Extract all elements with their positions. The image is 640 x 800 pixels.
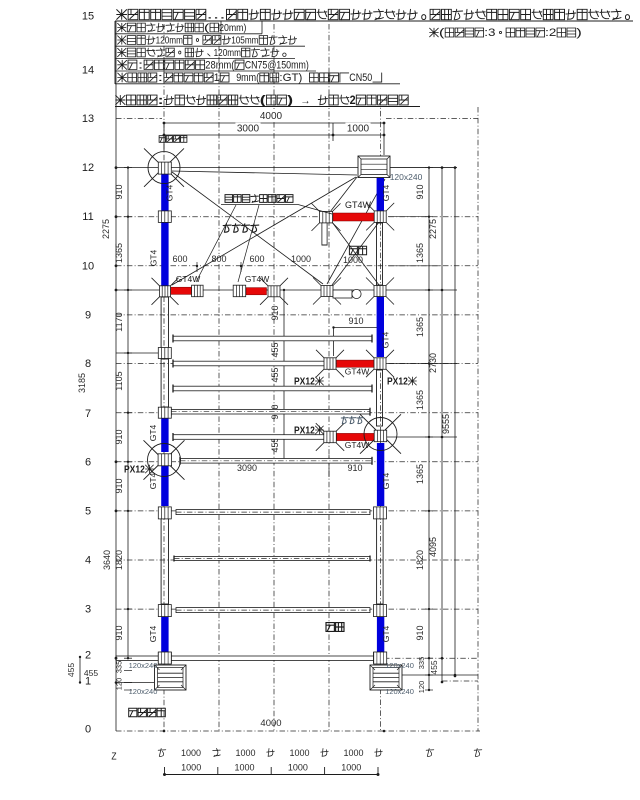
svg-text:12: 12 bbox=[82, 162, 94, 174]
svg-text:455: 455 bbox=[270, 437, 280, 452]
svg-text:3: 3 bbox=[85, 604, 91, 616]
svg-text:1170: 1170 bbox=[114, 312, 124, 331]
svg-text:1: 1 bbox=[214, 72, 220, 84]
svg-text:GT4W: GT4W bbox=[345, 367, 370, 377]
svg-text:3185: 3185 bbox=[77, 373, 87, 393]
svg-text:GT4W: GT4W bbox=[245, 274, 270, 284]
svg-text:PX12: PX12 bbox=[124, 464, 145, 475]
svg-text:): ) bbox=[576, 27, 582, 39]
svg-text:120x240: 120x240 bbox=[385, 661, 414, 670]
svg-text:(: ( bbox=[260, 94, 266, 107]
svg-text:14: 14 bbox=[82, 65, 94, 77]
svg-text:1000: 1000 bbox=[181, 763, 201, 773]
svg-text:2275: 2275 bbox=[428, 219, 438, 239]
svg-text:455: 455 bbox=[66, 663, 76, 677]
svg-text:4000: 4000 bbox=[260, 718, 281, 729]
svg-text::: : bbox=[138, 60, 144, 72]
svg-text:120x240: 120x240 bbox=[390, 172, 423, 182]
svg-text:CN75@150mm): CN75@150mm) bbox=[245, 60, 309, 72]
svg-text:910: 910 bbox=[114, 184, 124, 199]
svg-text:1820: 1820 bbox=[114, 550, 124, 570]
svg-text:600: 600 bbox=[249, 254, 264, 264]
svg-text:GT4: GT4 bbox=[148, 424, 158, 441]
svg-text:1000: 1000 bbox=[343, 748, 363, 758]
svg-text:1000: 1000 bbox=[234, 763, 254, 773]
svg-text:1105: 1105 bbox=[114, 371, 124, 390]
svg-text:1365: 1365 bbox=[415, 390, 425, 410]
svg-text:1365: 1365 bbox=[415, 317, 425, 337]
svg-text:6: 6 bbox=[85, 456, 91, 468]
svg-text:9mm(: 9mm( bbox=[236, 72, 259, 84]
svg-text:GT4: GT4 bbox=[381, 625, 391, 642]
svg-text:→: → bbox=[300, 94, 310, 107]
svg-text:910: 910 bbox=[415, 184, 425, 199]
svg-text:3090: 3090 bbox=[237, 463, 257, 473]
svg-text:1820: 1820 bbox=[415, 550, 425, 570]
svg-text:1: 1 bbox=[85, 676, 91, 688]
svg-text:910: 910 bbox=[270, 305, 280, 320]
svg-text:3640: 3640 bbox=[102, 550, 112, 570]
svg-text:1000: 1000 bbox=[347, 124, 370, 135]
svg-text:5: 5 bbox=[85, 505, 91, 517]
svg-text:910: 910 bbox=[415, 625, 425, 640]
svg-text:335: 335 bbox=[417, 657, 426, 670]
svg-text:800: 800 bbox=[211, 254, 226, 264]
svg-text:120x240: 120x240 bbox=[129, 687, 158, 696]
svg-text:910: 910 bbox=[347, 463, 362, 473]
svg-text:GT4: GT4 bbox=[148, 625, 158, 642]
svg-text:455: 455 bbox=[429, 660, 439, 674]
svg-text:...: ... bbox=[207, 8, 226, 22]
svg-text:(: ( bbox=[439, 27, 445, 39]
svg-text:GT4: GT4 bbox=[381, 472, 391, 489]
svg-text:GT4: GT4 bbox=[148, 472, 158, 489]
svg-text:1000: 1000 bbox=[288, 763, 308, 773]
svg-text:11: 11 bbox=[82, 211, 93, 223]
svg-text:120mm: 120mm bbox=[214, 47, 241, 59]
svg-text:105mm: 105mm bbox=[231, 35, 258, 47]
svg-text:1000: 1000 bbox=[341, 763, 361, 773]
svg-text:1365: 1365 bbox=[415, 243, 425, 263]
svg-text:1365: 1365 bbox=[415, 464, 425, 484]
svg-text:GT4W: GT4W bbox=[176, 274, 201, 284]
svg-text:0: 0 bbox=[85, 724, 91, 736]
svg-text::GT): :GT) bbox=[279, 72, 302, 84]
svg-text:GT4: GT4 bbox=[165, 184, 175, 201]
svg-text:3000: 3000 bbox=[237, 124, 260, 135]
svg-text:Z: Z bbox=[111, 751, 116, 762]
svg-text:13: 13 bbox=[82, 113, 94, 125]
svg-text:(: ( bbox=[204, 22, 210, 34]
svg-text::: : bbox=[158, 94, 164, 107]
svg-text::2: :2 bbox=[545, 27, 556, 39]
svg-text:120: 120 bbox=[417, 681, 426, 694]
svg-text:GT4: GT4 bbox=[381, 184, 391, 201]
svg-text:910: 910 bbox=[114, 429, 124, 444]
svg-text:PX12: PX12 bbox=[294, 425, 315, 436]
svg-text:2: 2 bbox=[85, 650, 91, 662]
svg-text:1365: 1365 bbox=[114, 243, 124, 263]
svg-text:335: 335 bbox=[115, 661, 124, 674]
svg-text:120x240: 120x240 bbox=[129, 661, 158, 670]
svg-text:1000: 1000 bbox=[289, 748, 309, 758]
svg-text:4: 4 bbox=[85, 555, 91, 567]
svg-text:GT4: GT4 bbox=[149, 249, 159, 266]
svg-text:1000: 1000 bbox=[181, 748, 201, 758]
svg-text:4095: 4095 bbox=[428, 537, 438, 557]
svg-text:15: 15 bbox=[82, 11, 94, 23]
svg-text:2730: 2730 bbox=[428, 353, 438, 373]
svg-text:4000: 4000 bbox=[260, 111, 283, 122]
svg-text:9555: 9555 bbox=[441, 414, 451, 434]
svg-text:2275: 2275 bbox=[101, 219, 111, 239]
svg-text::: : bbox=[158, 72, 164, 84]
svg-text:1000: 1000 bbox=[235, 748, 255, 758]
svg-text:120mm: 120mm bbox=[156, 35, 183, 47]
svg-text:28mm(: 28mm( bbox=[205, 60, 234, 72]
svg-text:CN50: CN50 bbox=[349, 72, 372, 84]
svg-text:10: 10 bbox=[82, 260, 94, 272]
svg-text:20mm): 20mm) bbox=[219, 22, 246, 34]
svg-text:910: 910 bbox=[114, 478, 124, 493]
svg-text:PX12: PX12 bbox=[294, 376, 315, 387]
svg-text:2: 2 bbox=[350, 94, 356, 107]
svg-text:GT4: GT4 bbox=[381, 331, 391, 348]
svg-text:): ) bbox=[287, 94, 293, 107]
svg-text:455: 455 bbox=[270, 367, 280, 382]
svg-text:600: 600 bbox=[172, 254, 187, 264]
svg-text:GT4W: GT4W bbox=[345, 200, 372, 210]
svg-text:9: 9 bbox=[85, 309, 91, 321]
svg-text:120x240: 120x240 bbox=[385, 687, 414, 696]
svg-text:120: 120 bbox=[115, 678, 124, 691]
svg-text::3: :3 bbox=[484, 27, 495, 39]
svg-text:455: 455 bbox=[270, 342, 280, 357]
svg-text:8: 8 bbox=[85, 358, 91, 370]
svg-text:910: 910 bbox=[348, 316, 363, 326]
svg-text:910: 910 bbox=[114, 625, 124, 640]
svg-text:7: 7 bbox=[85, 408, 91, 420]
svg-text:GT4W: GT4W bbox=[345, 440, 370, 450]
svg-text:PX12: PX12 bbox=[387, 376, 408, 387]
